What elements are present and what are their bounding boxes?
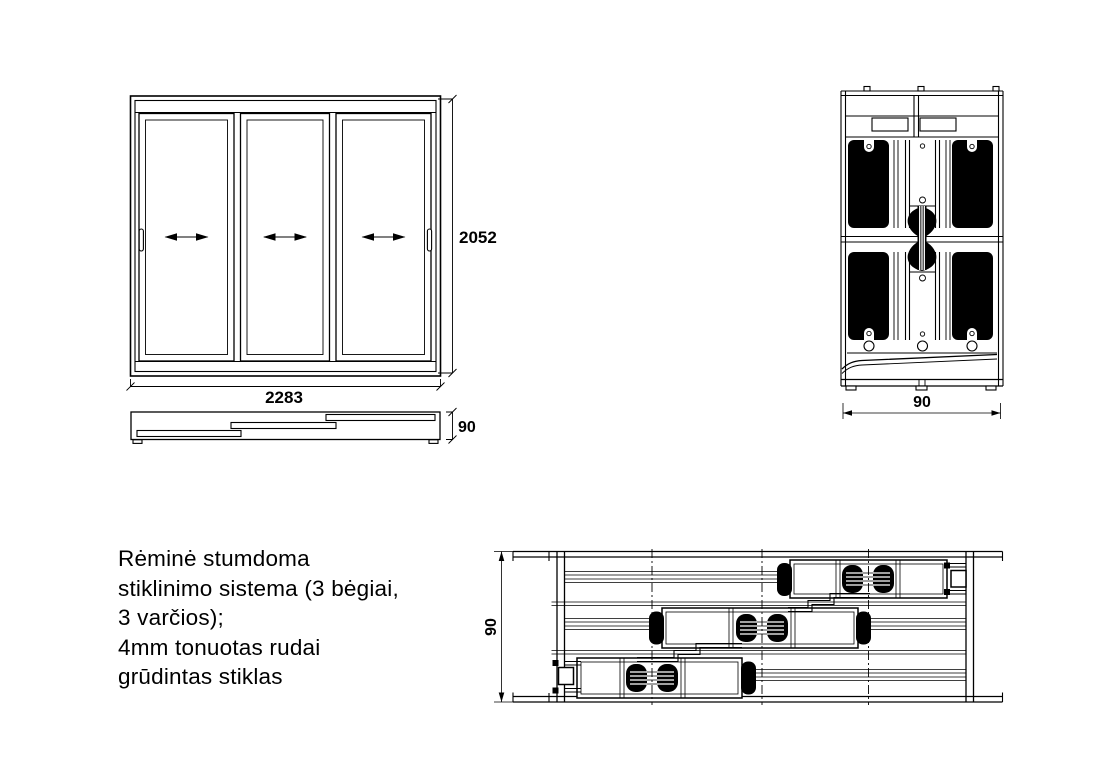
plan-panel-middle <box>231 423 336 429</box>
roller-clip <box>918 341 928 351</box>
technical-drawing-page: 2052 2283 90 <box>0 0 1117 784</box>
glazing-gasket <box>741 662 756 695</box>
description-line: stiklinimo sistema (3 bėgiai, <box>118 574 418 604</box>
glazing-gasket <box>848 140 889 228</box>
dimension-plan-depth: 90 <box>446 408 476 444</box>
dimension-section-depth: 90 <box>483 552 513 703</box>
description-line: 4mm tonuotas rudai <box>118 633 418 663</box>
description-line: grūdintas stiklas <box>118 662 418 692</box>
glazing-gasket <box>848 252 889 340</box>
roller-clip <box>967 341 977 351</box>
glazing-gasket <box>952 140 993 228</box>
handle-left <box>139 229 143 251</box>
dim-section-width-label: 90 <box>913 394 931 411</box>
sash-profile-middle <box>662 608 858 648</box>
handle-right <box>427 229 431 251</box>
dimension-width: 2283 <box>127 379 445 407</box>
slide-direction-arrow-icon <box>263 233 307 241</box>
description-line: Rėminė stumdoma <box>118 544 418 574</box>
dim-plan-depth-label: 90 <box>458 419 476 436</box>
dimension-section-width: 90 <box>843 394 1001 419</box>
plan-panel-right <box>326 415 435 421</box>
front-elevation-view: 2052 2283 <box>127 95 497 407</box>
glazing-gasket <box>649 612 664 645</box>
dim-section-depth-label: 90 <box>483 618 500 636</box>
description-line: 3 varčios); <box>118 603 418 633</box>
horizontal-section-view: 90 <box>483 549 1003 705</box>
description-text: Rėminė stumdoma stiklinimo sistema (3 bė… <box>118 544 418 692</box>
slide-direction-arrow-icon <box>362 233 406 241</box>
vertical-section-view: 90 <box>841 87 1003 420</box>
slide-direction-arrow-icon <box>165 233 209 241</box>
glazing-gasket <box>777 563 792 596</box>
glazing-gasket <box>952 252 993 340</box>
dim-height-label: 2052 <box>459 228 497 247</box>
plan-panel-left <box>137 431 241 437</box>
roller-clip <box>864 341 874 351</box>
plan-view: 90 <box>131 408 476 444</box>
dim-width-label: 2283 <box>265 388 303 407</box>
dimension-height: 2052 <box>438 95 497 377</box>
